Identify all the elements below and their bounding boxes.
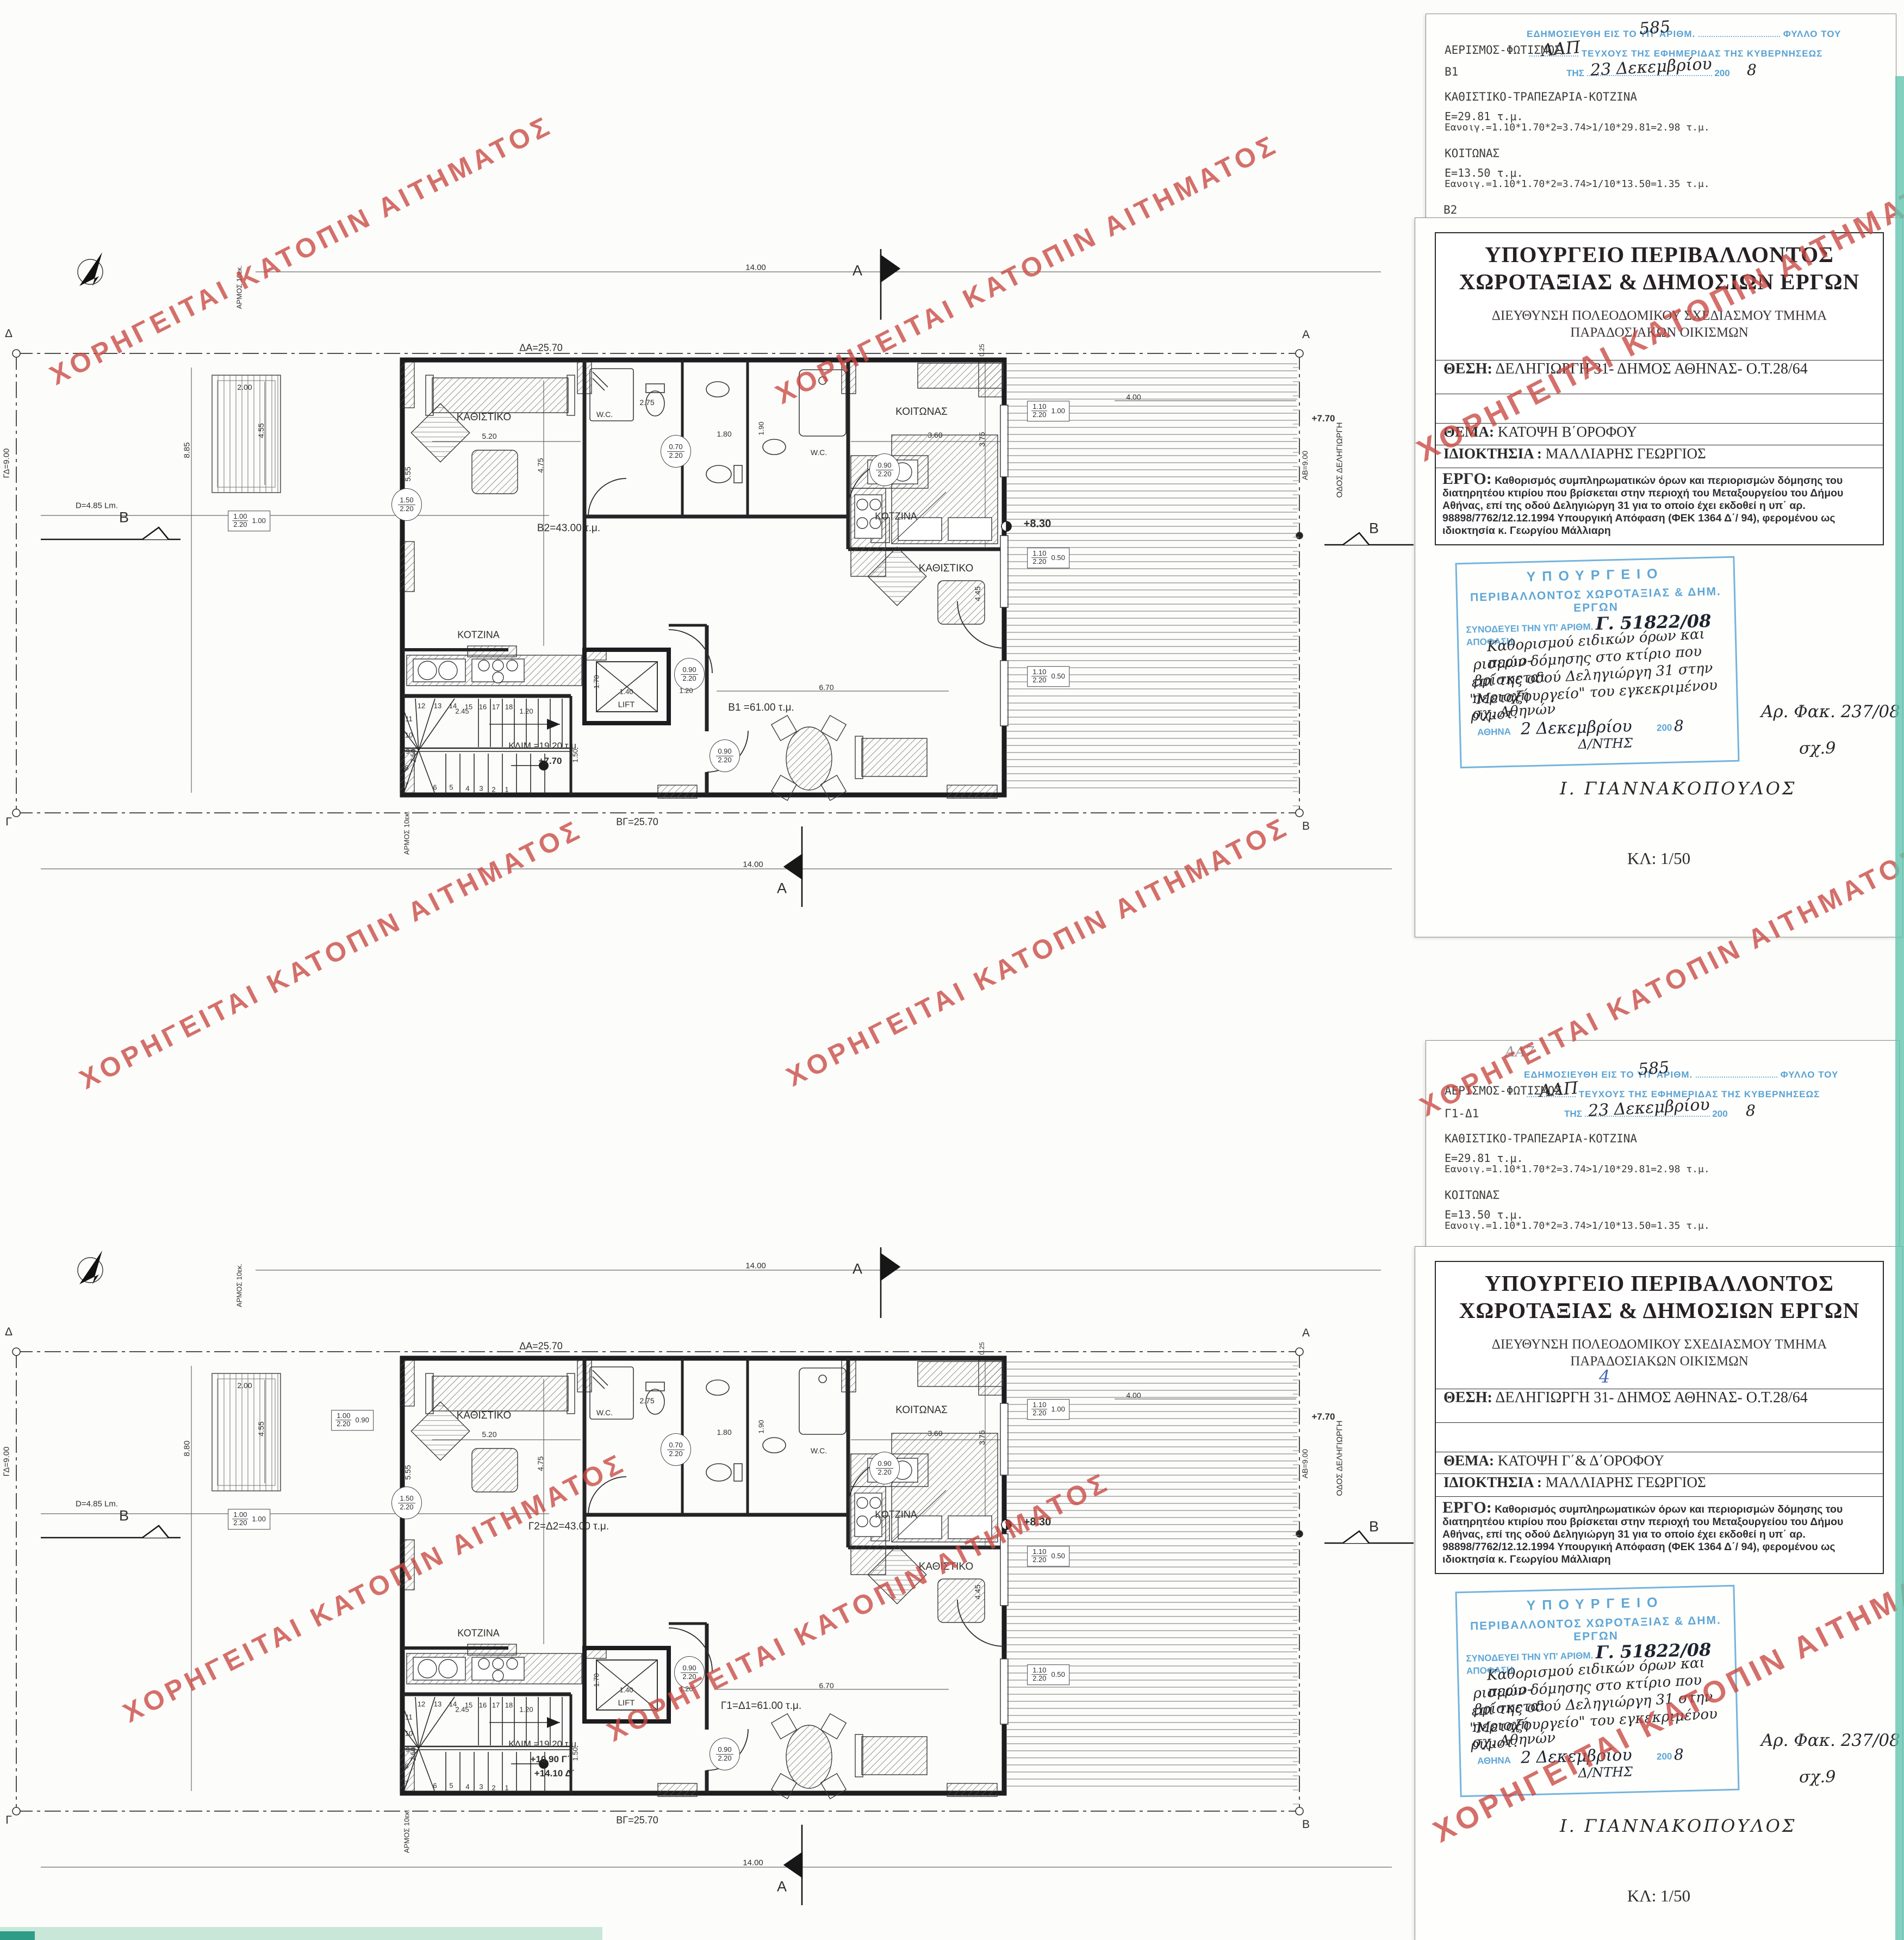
plan-label: Α: [777, 880, 787, 897]
room-label: ΚΑΘΙΣΤΙΚΟ-ΤΡΑΠΕΖΑΡΙΑ-ΚΟΤΖΙΝΑ: [1445, 1132, 1637, 1145]
plan-label: 16: [479, 703, 487, 711]
area-value: Ε=13.50 τ.μ.: [1445, 166, 1523, 179]
scale-note: ΚΛ: 1/50: [1415, 1886, 1902, 1906]
stamp-line1: ΥΠΟΥΡΓΕΙΟ: [1457, 564, 1734, 587]
calc-value: Εανοιγ.=1.10*1.70*2=3.74>1/10*29.81=2.98…: [1445, 1164, 1710, 1175]
plan-label: 1.70: [593, 1673, 601, 1687]
window-size-box: 1.102.200.50: [1027, 1546, 1069, 1566]
plan-label: 1: [505, 1784, 508, 1792]
room-label: ΚΟΙΤΩΝΑΣ: [1445, 147, 1499, 160]
plan-label: 14.00: [745, 1261, 766, 1271]
scale-note: ΚΛ: 1/50: [1415, 849, 1902, 868]
idioktisia-value: ΜΑΛΛΙΑΡΗΣ ΓΕΩΡΓΙΟΣ: [1546, 1474, 1706, 1490]
plan-label: ΑΡΜΟΣ 10εκ.: [235, 265, 244, 309]
plan-label: 5.55: [403, 467, 412, 481]
plan-label: 8: [405, 1762, 408, 1770]
plan-label: 6: [433, 1782, 437, 1790]
scanner-edge-right: [1895, 76, 1904, 1940]
plan-label: ΑΡΜΟΣ 10εκ.: [403, 1810, 411, 1853]
plan-label: D=4.85 Lm.: [76, 501, 118, 511]
plan-label: 4.45: [973, 1584, 982, 1599]
plan-label: 3: [479, 1783, 483, 1791]
plan-label: Α: [853, 1261, 862, 1278]
plan-label: 3.60: [928, 431, 942, 439]
plan-label: 4.45: [973, 586, 982, 601]
plan-label: 1.20: [519, 1706, 533, 1714]
ministry-line2: ΧΩΡΟΤΑΞΙΑΣ & ΔΗΜΟΣΙΩΝ ΕΡΓΩΝ: [1436, 1297, 1883, 1324]
plan-label: Β: [119, 1508, 129, 1525]
plan-label: Α: [853, 263, 862, 279]
sheet-ref-handwritten: σχ.9: [1799, 739, 1835, 758]
level-annotation: +7.70: [1311, 1412, 1335, 1422]
plan-label: 3: [479, 785, 483, 793]
plan-label: W.C.: [811, 448, 827, 457]
idioktisia-label: ΙΔΙΟΚΤΗΣΙΑ :: [1443, 1474, 1542, 1490]
plan-label: ΑΡΜΟΣ 10εκ.: [235, 1264, 244, 1307]
plan-label: 16: [479, 1701, 487, 1709]
idioktisia-row: ΙΔΙΟΚΤΗΣΙΑ : ΜΑΛΛΙΑΡΗΣ ΓΕΩΡΓΙΟΣ: [1436, 445, 1883, 468]
plan-label: 1.80: [717, 1428, 731, 1437]
door-size-bubble: 0.902.20: [674, 658, 705, 691]
plan-label: ΚΟΙΤΩΝΑΣ: [895, 406, 948, 418]
plan-label: 11: [405, 715, 413, 723]
plan-label: Γ: [5, 1814, 12, 1827]
thesi-label: ΘΕΣΗ:: [1443, 360, 1492, 377]
ergo-value: Καθορισμός συμπληρωματικών όρων και περι…: [1442, 475, 1843, 537]
plan-label: 18: [505, 1701, 513, 1709]
stamp-year-handwritten: 8: [1673, 717, 1684, 735]
plan-label: Δ: [5, 1326, 13, 1339]
plan-label: 2.75: [639, 1396, 654, 1405]
stamp-city: ΑΘΗΝΑ: [1477, 1755, 1511, 1767]
plan-label: 14: [449, 702, 457, 710]
idioktisia-label: ΙΔΙΟΚΤΗΣΙΑ :: [1443, 445, 1542, 462]
signature-handwritten: Ι. ΓΙΑΝΝΑΚΟΠΟΥΛΟΣ: [1560, 778, 1796, 799]
plan-label: ΚΟΤΖΙΝΑ: [875, 511, 917, 523]
window-size-box: 1.102.200.50: [1027, 548, 1069, 568]
door-size-bubble: 0.902.20: [674, 1656, 705, 1689]
plan-label: 1.50: [571, 749, 580, 762]
level-annotation: +7.70: [538, 756, 562, 767]
area-value: Ε=29.81 τ.μ.: [1445, 1152, 1523, 1165]
title-block-b: ΥΠΟΥΡΓΕΙΟ ΠΕΡΙΒΑΛΛΟΝΤΟΣ ΧΩΡΟΤΑΞΙΑΣ & ΔΗΜ…: [1415, 1246, 1903, 1940]
plan-label: 9: [406, 748, 409, 756]
plan-label: 13: [434, 702, 441, 710]
plan-label: 3.75: [978, 1430, 986, 1445]
fek-number-handwritten: 585: [1638, 1058, 1670, 1079]
file-number-handwritten: Αρ. Φακ. 237/08: [1761, 702, 1900, 722]
ergo-row: ΕΡΓΟ: Καθορισμός συμπληρωματικών όρων κα…: [1436, 468, 1883, 544]
plan-label: 2.50: [409, 1747, 418, 1761]
plan-label: Β: [1302, 1818, 1310, 1831]
plan-label: 6.70: [819, 683, 833, 692]
stamp-line1: ΥΠΟΥΡΓΕΙΟ: [1457, 1593, 1734, 1615]
unit-label: Β1: [1445, 65, 1458, 78]
room-label: ΚΟΙΤΩΝΑΣ: [1445, 1189, 1499, 1202]
plan-label: 3.75: [978, 432, 986, 446]
stamp-year-handwritten: 8: [1673, 1745, 1684, 1763]
level-annotation: +10.90 Γ΄: [530, 1754, 570, 1765]
ministry-line1: ΥΠΟΥΡΓΕΙΟ ΠΕΡΙΒΑΛΛΟΝΤΟΣ: [1436, 233, 1883, 268]
scanner-edge-corner: [0, 1931, 35, 1940]
ergo-label: ΕΡΓΟ:: [1442, 470, 1492, 488]
stamp-year: 200: [1657, 1751, 1672, 1763]
plan-label: ΚΛΙΜ.=19.20 τ.μ.: [508, 1739, 578, 1750]
plan-label: 12: [418, 702, 425, 710]
plan-label: 5: [449, 784, 453, 792]
plan-label: ΓΔ=9.00: [2, 449, 11, 478]
plan-label: 13: [434, 1700, 441, 1708]
plan-label: ΚΟΤΖΙΝΑ: [875, 1509, 917, 1521]
plan-label: 4.55: [257, 423, 265, 438]
plan-label: 2.75: [639, 398, 654, 407]
thesi-label: ΘΕΣΗ:: [1443, 1389, 1492, 1406]
plan-label: ΚΟΤΖΙΝΑ: [457, 630, 499, 641]
level-annotation: +8.30: [1024, 518, 1051, 531]
plan-label: LIFT: [618, 700, 635, 710]
directorate-line1: ΔΙΕΥΘΥΝΣΗ ΠΟΛΕΟΔΟΜΙΚΟΥ ΣΧΕΔΙΑΣΜΟΥ ΤΜΗΜΑ: [1436, 1324, 1883, 1353]
plan-label: Β1 =61.00 τ.μ.: [728, 702, 794, 714]
door-size-bubble: 0.902.20: [869, 453, 900, 486]
plan-label: 5.55: [403, 1465, 412, 1479]
area-value: Ε=29.81 τ.μ.: [1445, 110, 1523, 123]
plan-label: Δ: [5, 327, 13, 340]
plan-label: 1.40: [619, 1686, 633, 1694]
plan-label: 8.85: [183, 442, 192, 458]
unit-label: Β2: [1443, 203, 1457, 216]
window-size-box: 1.102.201.00: [1027, 401, 1069, 421]
title-box: ΥΠΟΥΡΓΕΙΟ ΠΕΡΙΒΑΛΛΟΝΤΟΣ ΧΩΡΟΤΑΞΙΑΣ & ΔΗΜ…: [1435, 1261, 1884, 1574]
plan-label: 10: [405, 1730, 413, 1738]
plan-label: 8.80: [183, 1440, 192, 1456]
plan-label: ΑΒ=9.00: [1301, 451, 1309, 480]
scanner-edge-bottom: [0, 1927, 602, 1940]
directorate-line1: ΔΙΕΥΘΥΝΣΗ ΠΟΛΕΟΔΟΜΙΚΟΥ ΣΧΕΔΙΑΣΜΟΥ ΤΜΗΜΑ: [1436, 295, 1883, 324]
plan-label: 4.00: [1126, 1391, 1141, 1400]
plan-label: 2.50: [409, 749, 418, 762]
stamp-year: 200: [1657, 723, 1672, 734]
plan-label: 15: [465, 1701, 472, 1709]
plan-label: 2: [491, 786, 495, 794]
window-size-box: 1.102.200.50: [1027, 1664, 1069, 1685]
idioktisia-row: ΙΔΙΟΚΤΗΣΙΑ : ΜΑΛΛΙΑΡΗΣ ΓΕΩΡΓΙΟΣ: [1436, 1474, 1883, 1497]
plan-label: ΒΓ=25.70: [616, 817, 658, 828]
window-size-box: 1.102.200.50: [1027, 666, 1069, 687]
ministry-header: ΥΠΟΥΡΓΕΙΟ ΠΕΡΙΒΑΛΛΟΝΤΟΣ ΧΩΡΟΤΑΞΙΑΣ & ΔΗΜ…: [1436, 233, 1883, 360]
plan-label: W.C.: [596, 1408, 613, 1417]
ministry-line1: ΥΠΟΥΡΓΕΙΟ ΠΕΡΙΒΑΛΛΟΝΤΟΣ: [1436, 1262, 1883, 1297]
calc-value: Εανοιγ.=1.10*1.70*2=3.74>1/10*13.50=1.35…: [1445, 1220, 1710, 1232]
plan-label: 14.00: [745, 263, 766, 272]
level-annotation: +14.10 Δ΄: [534, 1768, 575, 1779]
door-size-bubble: 1.502.20: [391, 1487, 422, 1519]
plan-label: ΚΛΙΜ.=19.20 τ.μ.: [508, 741, 578, 751]
plan-label: 4.55: [257, 1421, 265, 1436]
title-box: ΥΠΟΥΡΓΕΙΟ ΠΕΡΙΒΑΛΛΟΝΤΟΣ ΧΩΡΟΤΑΞΙΑΣ & ΔΗΜ…: [1435, 232, 1884, 545]
thesi-value: ΔΕΛΗΓΙΩΡΓΗ 31- ΔΗΜΟΣ ΑΘΗΝΑΣ- Ο.Τ.28/64: [1495, 360, 1807, 377]
room-label: ΚΑΘΙΣΤΙΚΟ-ΤΡΑΠΕΖΑΡΙΑ-ΚΟΤΖΙΝΑ: [1445, 90, 1637, 103]
fek-issue-handwritten: ΑΑΠ: [1541, 38, 1582, 60]
plan-label: 1.50: [571, 1747, 580, 1761]
plan-label: 1.20: [519, 707, 533, 716]
approval-stamp: ΥΠΟΥΡΓΕΙΟ ΠΕΡΙΒΑΛΛΟΝΤΟΣ ΧΩΡΟΤΑΞΙΑΣ & ΔΗΜ…: [1455, 1585, 1739, 1797]
thesi-row: ΘΕΣΗ: ΔΕΛΗΓΙΩΡΓΗ 31- ΔΗΜΟΣ ΑΘΗΝΑΣ- Ο.Τ.2…: [1436, 360, 1883, 394]
plan-label: Α: [1302, 1327, 1310, 1340]
fek-issue-handwritten: ΑΑΠ: [1539, 1078, 1579, 1101]
plan-label: ΟΔΟΣ ΔΕΛΗΓΙΩΡΓΗ: [1335, 1421, 1345, 1496]
plan-label: W.C.: [596, 410, 613, 419]
plan-label: 7: [405, 1780, 408, 1788]
plan-label: Α: [777, 1879, 787, 1895]
plan-label: 5: [449, 1782, 453, 1790]
plan-label: 4: [465, 785, 469, 793]
plan-label: 10: [405, 731, 413, 739]
door-size-bubble: 0.902.20: [710, 739, 740, 772]
plan-label: Β: [1369, 520, 1379, 537]
plan-label: ΑΡΜΟΣ 10εκ.: [403, 811, 411, 855]
ergo-row: ΕΡΓΟ: Καθορισμός συμπληρωματικών όρων κα…: [1436, 1497, 1883, 1573]
signature-handwritten: Ι. ΓΙΑΝΝΑΚΟΠΟΥΛΟΣ: [1560, 1815, 1796, 1836]
title-block-a: ΥΠΟΥΡΓΕΙΟ ΠΕΡΙΒΑΛΛΟΝΤΟΣ ΧΩΡΟΤΑΞΙΑΣ & ΔΗΜ…: [1415, 217, 1903, 937]
plan-label: ΓΔ=9.00: [2, 1447, 11, 1477]
window-size-box: 1.002.201.00: [228, 511, 270, 531]
level-annotation: +7.70: [1311, 413, 1335, 424]
plan-label: 17: [492, 1701, 500, 1709]
plan-label: 5.20: [482, 1430, 496, 1439]
plan-label: 2: [491, 1784, 495, 1792]
window-size-box: 1.002.200.90: [331, 1410, 374, 1431]
plan-label: 4.00: [1126, 393, 1141, 401]
plan-label: 12: [418, 1700, 425, 1708]
plan-label: 14: [449, 1700, 457, 1708]
plan-label: ΚΑΘΙΣΤΙΚΟ: [457, 1410, 512, 1422]
plan-label: LIFT: [618, 1699, 635, 1708]
window-size-box: 1.002.201.00: [228, 1509, 270, 1529]
idioktisia-value: ΜΑΛΛΙΑΡΗΣ ΓΕΩΡΓΙΟΣ: [1546, 445, 1706, 462]
plan-label: Α: [1302, 328, 1310, 341]
approval-stamp: ΥΠΟΥΡΓΕΙΟ ΠΕΡΙΒΑΛΛΟΝΤΟΣ ΧΩΡΟΤΑΞΙΑΣ & ΔΗΜ…: [1455, 556, 1739, 768]
door-size-bubble: 0.902.20: [710, 1738, 740, 1770]
plan-label: 0.25: [978, 1342, 986, 1354]
plan-label: 8: [405, 764, 408, 772]
plan-label: 1.90: [757, 421, 766, 435]
scanned-drawing-sheet: ΔΑ=25.7014.0014.00ΒΓ=25.70ΑΑΒΒΔΓΑΒΓΔ=9.0…: [0, 0, 1904, 1940]
plan-label: 4: [465, 1783, 469, 1791]
fek-year-handwritten: 8: [1747, 61, 1757, 79]
plan-label: 2.00: [237, 1381, 252, 1390]
file-number-handwritten: Αρ. Φακ. 237/08: [1761, 1731, 1900, 1750]
area-value: Ε=13.50 τ.μ.: [1445, 1208, 1523, 1221]
plan-label: Β2=43.00 τ.μ.: [537, 523, 600, 534]
plan-label: 6: [433, 784, 437, 792]
plan-label: 1.80: [717, 430, 731, 438]
plan-label: ΒΓ=25.70: [616, 1815, 658, 1826]
calc-value: Εανοιγ.=1.10*1.70*2=3.74>1/10*13.50=1.35…: [1445, 178, 1710, 190]
plan-label: 1.20: [679, 1685, 693, 1693]
plan-label: D=4.85 Lm.: [76, 1500, 118, 1509]
plan-label: Γ2=Δ2=43.00 τ.μ.: [528, 1521, 609, 1533]
plan-label: 2.00: [237, 383, 252, 391]
plan-label: ΟΔΟΣ ΔΕΛΗΓΙΩΡΓΗ: [1335, 422, 1345, 498]
plan-label: 1.40: [619, 688, 633, 696]
plan-label: Γ: [5, 816, 12, 829]
plan-label: 9: [406, 1746, 409, 1754]
plan-label: Β: [1369, 1519, 1379, 1535]
door-size-bubble: 0.702.20: [661, 435, 691, 468]
plan-label: 1.70: [593, 675, 601, 688]
sheet-ref-handwritten: σχ.9: [1799, 1768, 1835, 1787]
calc-value: Εανοιγ.=1.10*1.70*2=3.74>1/10*29.81=2.98…: [1445, 122, 1710, 133]
door-size-bubble: 0.902.20: [869, 1452, 900, 1484]
plan-label: ΔΑ=25.70: [519, 343, 563, 354]
plan-label: 18: [505, 703, 513, 711]
plan-label: ΑΒ=9.00: [1301, 1449, 1309, 1478]
plan-label: 6.70: [819, 1681, 833, 1690]
plan-label: ΚΟΤΖΙΝΑ: [457, 1628, 499, 1639]
plan-label: Β: [1302, 820, 1310, 833]
plan-label: ΚΑΘΙΣΤΙΚΟ: [457, 412, 512, 424]
plan-label: W.C.: [811, 1446, 827, 1455]
plan-label: Β: [119, 509, 129, 526]
ergo-value: Καθορισμός συμπληρωματικών όρων και περι…: [1442, 1503, 1843, 1565]
ergo-label: ΕΡΓΟ:: [1442, 1498, 1492, 1516]
level-annotation: +8.30: [1024, 1516, 1051, 1529]
plan-label: 11: [405, 1713, 413, 1721]
door-size-bubble: 1.502.20: [391, 488, 422, 521]
ministry-line2: ΧΩΡΟΤΑΞΙΑΣ & ΔΗΜΟΣΙΩΝ ΕΡΓΩΝ: [1436, 268, 1883, 295]
plan-label: 4.75: [536, 458, 545, 472]
plan-label: 7: [405, 781, 408, 789]
unit-label: Γ1-Δ1: [1445, 1107, 1479, 1120]
plan-label: Γ1=Δ1=61.00 τ.μ.: [721, 1700, 801, 1712]
plan-label: ΔΑ=25.70: [519, 1341, 563, 1352]
plan-label: 15: [465, 703, 472, 711]
handwritten-note: ΑΑ7: [1505, 1044, 1534, 1060]
fek-number-handwritten: 585: [1639, 17, 1671, 39]
plan-label: 1.90: [757, 1420, 766, 1433]
plan-label: 17: [492, 703, 500, 711]
plan-label: ΚΑΘΙΣΤΙΚΟ: [919, 1561, 974, 1573]
fek-year-handwritten: 8: [1746, 1102, 1756, 1120]
directorate-line2: ΠΑΡΑΔΟΣΙΑΚΩΝ ΟΙΚΙΣΜΩΝ: [1436, 324, 1883, 341]
door-size-bubble: 0.702.20: [661, 1433, 691, 1466]
plan-label: 14.00: [743, 860, 763, 869]
window-size-box: 1.102.201.00: [1027, 1399, 1069, 1420]
stamp-city: ΑΘΗΝΑ: [1477, 726, 1511, 738]
plan-label: 4.75: [536, 1456, 545, 1471]
plan-label: 1.20: [679, 687, 693, 695]
plan-label: 14.00: [743, 1858, 763, 1868]
thesi-value: ΔΕΛΗΓΙΩΡΓΗ 31- ΔΗΜΟΣ ΑΘΗΝΑΣ- Ο.Τ.28/64: [1495, 1389, 1807, 1406]
plan-label: 3.60: [928, 1429, 942, 1438]
thesi-row: ΘΕΣΗ: ΔΕΛΗΓΙΩΡΓΗ 31- ΔΗΜΟΣ ΑΘΗΝΑΣ- Ο.Τ.2…: [1436, 1389, 1883, 1423]
directorate-line2: ΠΑΡΑΔΟΣΙΑΚΩΝ ΟΙΚΙΣΜΩΝ: [1436, 1353, 1883, 1370]
plan-label: ΚΑΘΙΣΤΙΚΟ: [919, 563, 974, 575]
plan-label: 5.20: [482, 432, 496, 440]
stamp-director: Δ/ΝΤΗΣ: [1578, 735, 1633, 751]
stamp-director: Δ/ΝΤΗΣ: [1578, 1764, 1633, 1780]
ministry-header: ΥΠΟΥΡΓΕΙΟ ΠΕΡΙΒΑΛΛΟΝΤΟΣ ΧΩΡΟΤΑΞΙΑΣ & ΔΗΜ…: [1436, 1262, 1883, 1389]
plan-label: 0.25: [978, 344, 986, 356]
plan-label: ΚΟΙΤΩΝΑΣ: [895, 1404, 948, 1416]
plan-label: 1: [505, 786, 508, 794]
